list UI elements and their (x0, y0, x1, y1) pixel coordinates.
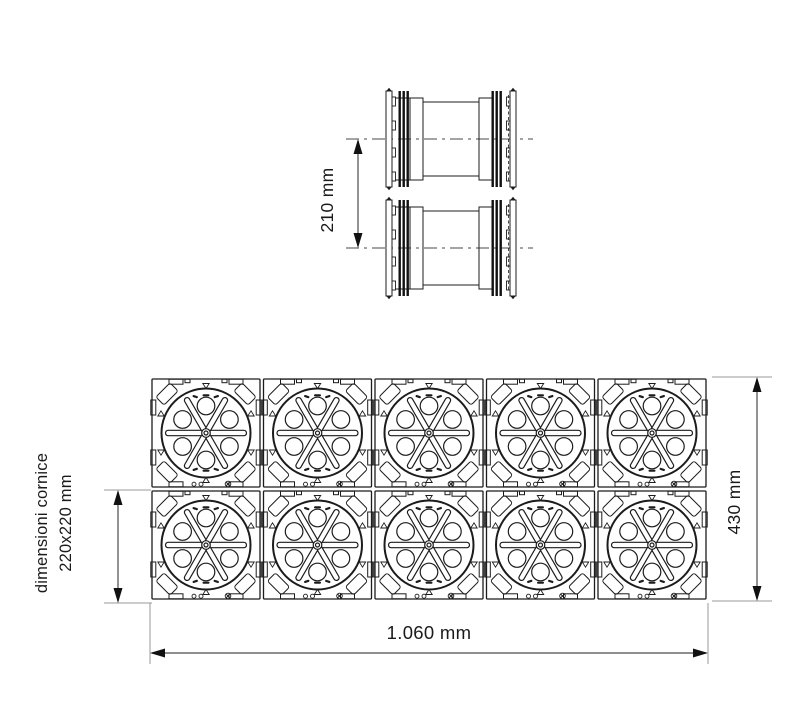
module-grid (151, 379, 707, 599)
module-tile (374, 491, 484, 599)
dimension-1060-label: 1.060 mm (387, 622, 472, 643)
module-tile (597, 491, 707, 599)
dimension-430: 430 mm (712, 377, 772, 601)
dimension-430-label: 430 mm (724, 469, 744, 534)
frame-caption-line2: 220x220 mm (57, 474, 75, 571)
dimension-1060: 1.060 mm (150, 603, 708, 664)
module-tile (374, 379, 484, 487)
module-tile (597, 379, 707, 487)
technical-drawing-page: 210 mm dimensioni cornice 220x220 mm 430… (0, 0, 800, 716)
technical-drawing: 210 mm dimensioni cornice 220x220 mm 430… (0, 0, 800, 716)
module-tile (151, 491, 261, 599)
module-tile (262, 379, 372, 487)
dimension-210: 210 mm (317, 139, 363, 248)
dimension-210-label: 210 mm (317, 167, 337, 232)
module-tile (262, 491, 372, 599)
module-tile (151, 379, 261, 487)
module-tile (485, 379, 595, 487)
dimension-220: dimensioni cornice 220x220 mm (33, 453, 152, 603)
coupler-side-view: 210 mm (317, 89, 533, 299)
module-tile (485, 491, 595, 599)
frame-caption-line1: dimensioni cornice (33, 453, 51, 593)
centerlines (346, 139, 533, 248)
